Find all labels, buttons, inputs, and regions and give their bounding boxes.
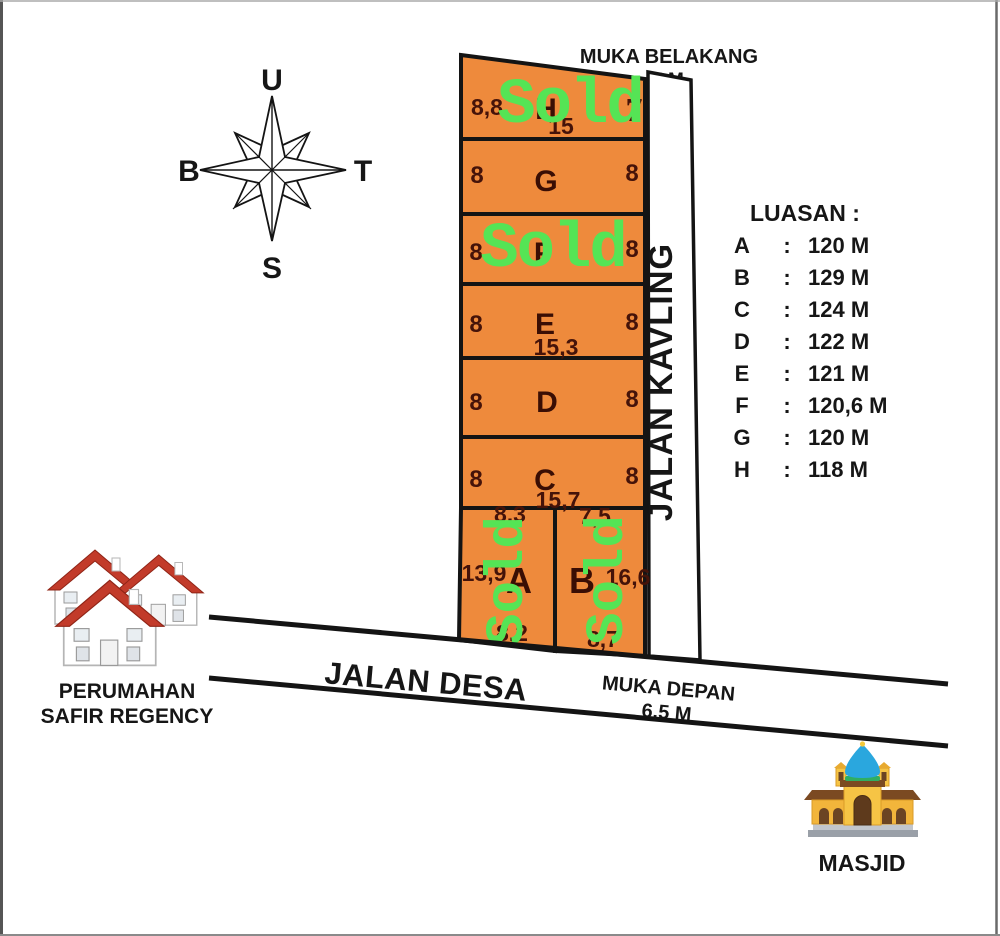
legend-area: 120 M xyxy=(808,425,869,450)
legend-plot-letter: H xyxy=(734,457,750,482)
housing-estate-label-line1: PERUMAHAN xyxy=(59,680,196,703)
plot-E-left-size: 8 xyxy=(469,311,482,338)
mosque-label: MASJID xyxy=(819,850,906,876)
compass-label-north: U xyxy=(261,64,283,97)
muka-belakang-label: MUKA BELAKANG xyxy=(580,46,758,68)
sold-stamp-plot-A: Sold xyxy=(478,516,539,646)
legend-title: LUASAN : xyxy=(750,200,860,226)
legend-colon: : xyxy=(783,233,790,258)
plot-G-left-size: 8 xyxy=(470,162,483,189)
kavling-site-plan: U T S B MUKA BELAKANG 5 M JALAN KAVLING … xyxy=(0,0,1000,936)
plot-D-left-size: 8 xyxy=(469,389,482,416)
sold-stamp-plot-H: Sold xyxy=(497,70,643,142)
legend-area: 129 M xyxy=(808,265,869,290)
compass-label-east: T xyxy=(354,155,372,188)
sold-stamp-plot-F: Sold xyxy=(480,214,626,286)
legend-colon: : xyxy=(783,329,790,354)
legend-plot-letter: F xyxy=(735,393,748,418)
plot-D-right-size: 8 xyxy=(625,386,638,413)
legend-plot-letter: C xyxy=(734,297,750,322)
kavling-road-label: JALAN KAVLING xyxy=(642,243,679,521)
muka-depan-size: 6,5 M xyxy=(641,700,693,726)
legend-area: 122 M xyxy=(808,329,869,354)
plot-G-right-size: 8 xyxy=(625,160,638,187)
legend-area: 118 M xyxy=(808,457,868,482)
legend-area: 120,6 M xyxy=(808,393,888,418)
compass-label-south: S xyxy=(262,252,282,285)
site-plan-canvas: U T S B MUKA BELAKANG 5 M JALAN KAVLING … xyxy=(0,0,1000,936)
legend-area: 121 M xyxy=(808,361,869,386)
plot-G-letter: G xyxy=(534,165,557,198)
legend-area: 124 M xyxy=(808,297,869,322)
legend-plot-letter: G xyxy=(733,425,750,450)
plot-F-right-size: 8 xyxy=(625,236,638,263)
plot-C-right-size: 8 xyxy=(625,463,638,490)
plot-E-bottom-size: 15,3 xyxy=(534,334,579,360)
legend-colon: : xyxy=(783,297,790,322)
plot-D-letter: D xyxy=(536,386,558,419)
legend-colon: : xyxy=(783,425,790,450)
legend-colon: : xyxy=(783,265,790,290)
plot-C-bottom-size: 15,7 xyxy=(536,487,581,513)
legend-plot-letter: B xyxy=(734,265,750,290)
compass-label-west: B xyxy=(178,155,200,188)
legend-plot-letter: D xyxy=(734,329,750,354)
plot-E-right-size: 8 xyxy=(625,309,638,336)
legend-plot-letter: A xyxy=(734,233,750,258)
legend-colon: : xyxy=(783,361,790,386)
legend-area: 120 M xyxy=(808,233,869,258)
legend-colon: : xyxy=(783,393,790,418)
legend-colon: : xyxy=(783,457,790,482)
housing-estate-label-line2: SAFIR REGENCY xyxy=(41,705,214,728)
plot-C-left-size: 8 xyxy=(469,466,482,493)
sold-stamp-plot-B: Sold xyxy=(578,515,639,645)
legend-plot-letter: E xyxy=(735,361,750,386)
